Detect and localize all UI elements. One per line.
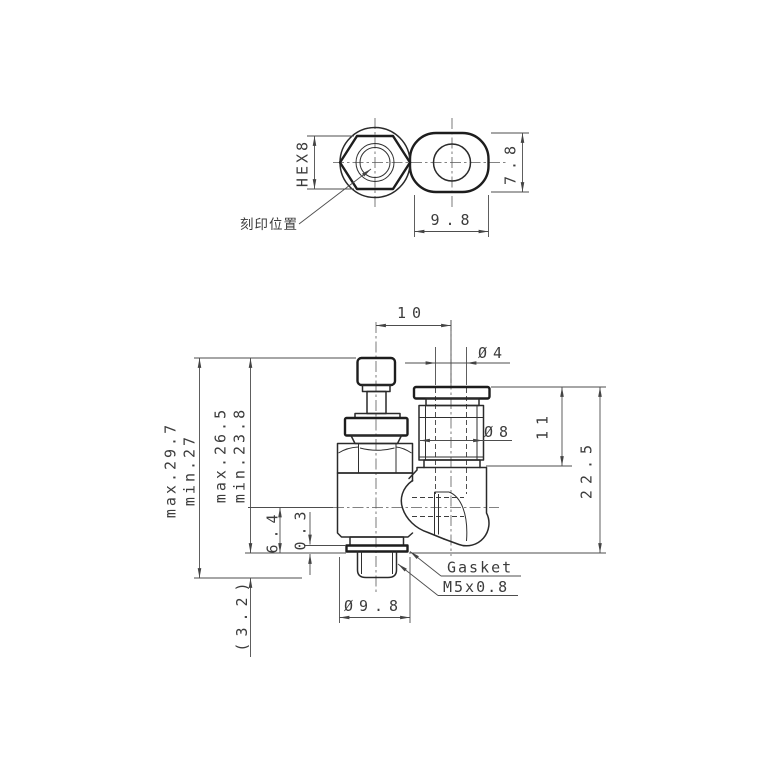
dim-thread-length-label: (3.2) <box>233 576 251 651</box>
dim-side-height-label: 22.5 <box>578 439 596 499</box>
dim-body-max-label: max.26.5 <box>212 407 230 503</box>
dim-7-8-label: 7.8 <box>502 140 520 185</box>
sleeve-step-ring <box>424 460 480 468</box>
hex-section <box>338 444 413 474</box>
dim-port-height: 6.4 <box>264 508 282 554</box>
dim-9-8-label: 9.8 <box>430 211 475 229</box>
dim-fitting-diameter: Ø8 <box>420 423 514 441</box>
dim-tube-diameter-label: Ø4 <box>478 344 508 362</box>
dim-side-height: 22.5 <box>578 387 601 553</box>
dim-port-offset: 10 <box>376 304 451 383</box>
drawing-canvas: HEX8 7.8 9.8 刻印位置 <box>0 0 768 768</box>
dim-port-offset-label: 10 <box>397 304 427 322</box>
dim-gasket-protrusion: 0.3 <box>292 505 311 575</box>
dim-body-diameter-label: Ø9.8 <box>344 597 404 615</box>
gasket <box>347 546 408 552</box>
dim-overall-min-label: min.27 <box>181 434 199 506</box>
dim-gasket-protrusion-label: 0.3 <box>292 505 310 550</box>
valve-body <box>338 358 413 578</box>
dim-body-diameter: Ø9.8 <box>340 557 411 623</box>
banjo-ball <box>401 481 444 540</box>
dim-body-min-label: min.23.8 <box>231 407 249 503</box>
dim-tube-diameter: Ø4 <box>405 344 510 385</box>
dim-9-8: 9.8 <box>415 195 489 237</box>
thread-spec-text: M5x0.8 <box>443 578 509 596</box>
marking-position-text: 刻印位置 <box>240 217 298 233</box>
dim-port-height-label: 6.4 <box>264 508 282 553</box>
elbow-fitting <box>401 387 489 546</box>
dim-fitting-height: 11 <box>534 387 563 466</box>
gasket-label-text: Gasket <box>447 559 513 577</box>
release-collar-cap <box>414 387 490 399</box>
dim-fitting-height-label: 11 <box>534 410 552 440</box>
technical-drawing: HEX8 7.8 9.8 刻印位置 <box>0 0 768 768</box>
dim-body-height: max.26.5 min.23.8 <box>212 358 251 553</box>
label-gasket: Gasket <box>410 552 521 577</box>
dim-hex8-label: HEX8 <box>294 139 312 187</box>
dim-fitting-diameter-label: Ø8 <box>484 423 514 441</box>
hidden-lines <box>412 388 467 517</box>
needle-stem <box>367 392 386 414</box>
top-view: HEX8 7.8 9.8 刻印位置 <box>240 118 529 237</box>
dim-thread-length: (3.2) <box>233 576 251 657</box>
dim-overall-max-label: max.29.7 <box>162 422 180 518</box>
m5-stud <box>358 552 397 578</box>
seat-step <box>350 537 404 546</box>
front-view: max.29.7 min.27 max.26.5 min.23.8 (3.2) … <box>162 304 607 657</box>
dim-overall-height: max.29.7 min.27 <box>162 358 200 578</box>
